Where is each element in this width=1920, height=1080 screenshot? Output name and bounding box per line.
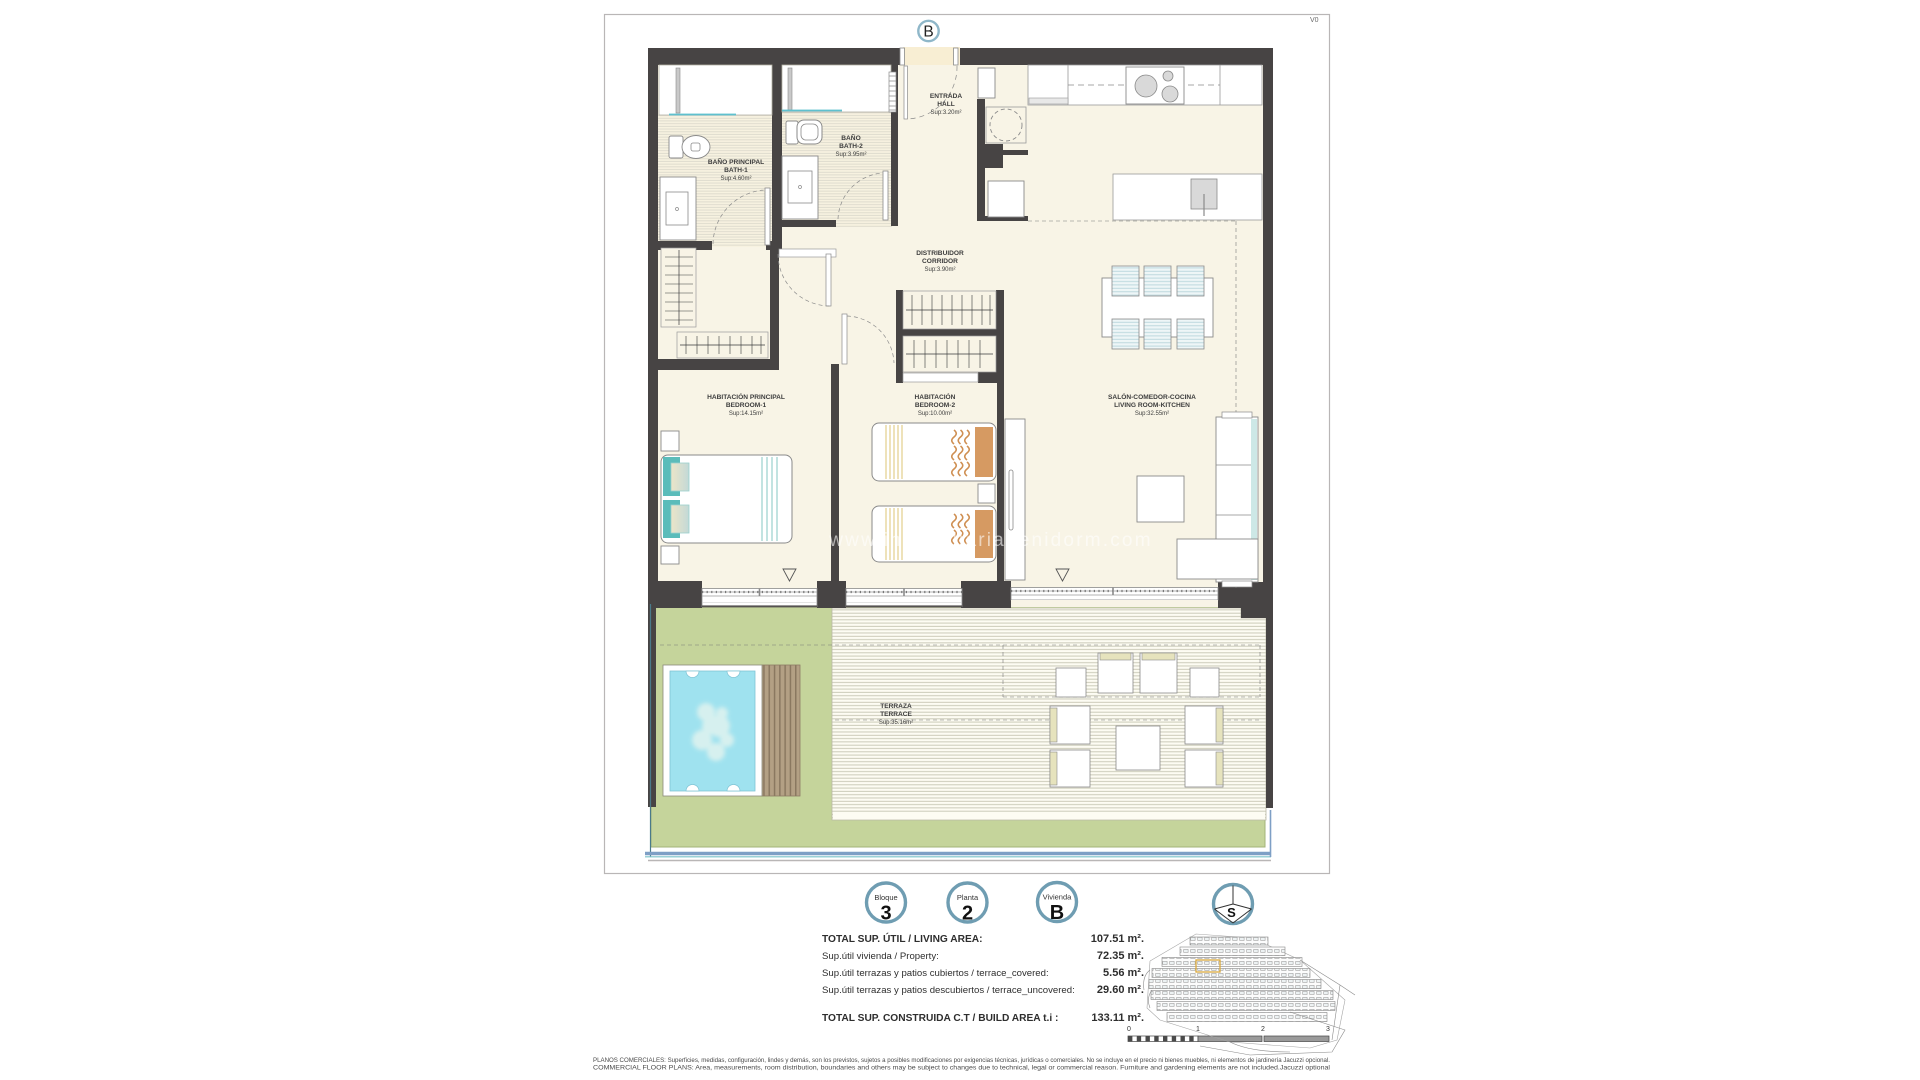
- svg-text:2: 2: [1261, 1026, 1265, 1033]
- svg-text:B: B: [923, 24, 933, 41]
- svg-text:Bloque: Bloque: [874, 893, 897, 902]
- svg-text:Sup:35.16m²: Sup:35.16m²: [879, 720, 913, 726]
- svg-text:SALÓN-COMEDOR-COCINA: SALÓN-COMEDOR-COCINA: [1108, 392, 1196, 401]
- svg-text:BAÑO PRINCIPAL: BAÑO PRINCIPAL: [708, 157, 764, 166]
- svg-text:BEDROOM-2: BEDROOM-2: [915, 402, 956, 409]
- svg-text:3: 3: [1326, 1026, 1330, 1033]
- svg-text:29.60 m².: 29.60 m².: [1097, 984, 1144, 996]
- svg-text:3: 3: [880, 903, 891, 925]
- svg-text:Planta: Planta: [957, 893, 979, 902]
- svg-text:BATH-1: BATH-1: [724, 167, 748, 174]
- svg-text:133.11 m².: 133.11 m².: [1091, 1012, 1144, 1024]
- svg-text:COMMERCIAL FLOOR PLANS: Area,: COMMERCIAL FLOOR PLANS: Area, measuremen…: [593, 1065, 1330, 1072]
- svg-text:Sup:14.15m²: Sup:14.15m²: [729, 411, 763, 417]
- svg-text:HALL: HALL: [937, 101, 955, 108]
- svg-text:Sup:3.90m²: Sup:3.90m²: [924, 267, 955, 273]
- svg-text:0: 0: [1127, 1026, 1131, 1033]
- svg-text:BAÑO: BAÑO: [841, 133, 860, 142]
- svg-text:TERRACE: TERRACE: [880, 711, 912, 718]
- svg-text:BATH-2: BATH-2: [839, 143, 863, 150]
- svg-text:Sup:3.95m²: Sup:3.95m²: [835, 152, 866, 158]
- svg-text:72.35 m².: 72.35 m².: [1097, 950, 1144, 962]
- svg-text:Sup.útil vivienda / Property:: Sup.útil vivienda / Property:: [822, 951, 939, 962]
- svg-text:BEDROOM-1: BEDROOM-1: [726, 402, 767, 409]
- svg-text:Vivienda: Vivienda: [1043, 893, 1072, 902]
- svg-text:CORRIDOR: CORRIDOR: [922, 258, 958, 265]
- svg-text:TERRAZA: TERRAZA: [880, 703, 912, 710]
- svg-text:2: 2: [962, 903, 973, 925]
- svg-text:Sup:32.55m²: Sup:32.55m²: [1135, 411, 1169, 417]
- svg-text:LIVING ROOM-KITCHEN: LIVING ROOM-KITCHEN: [1114, 402, 1190, 409]
- svg-text:Sup.útil terrazas y patios des: Sup.útil terrazas y patios descubiertos …: [822, 985, 1075, 996]
- svg-text:S: S: [1227, 905, 1236, 920]
- svg-text:HABITACIÓN PRINCIPAL: HABITACIÓN PRINCIPAL: [707, 392, 785, 401]
- svg-text:TOTAL SUP. ÚTIL / LIVING AREA:: TOTAL SUP. ÚTIL / LIVING AREA:: [822, 932, 983, 945]
- svg-text:V0: V0: [1310, 17, 1319, 24]
- svg-text:PLANOS COMERCIALES: Superficie: PLANOS COMERCIALES: Superficies, medidas…: [593, 1057, 1330, 1064]
- svg-text:TOTAL SUP. CONSTRUIDA C.T / BU: TOTAL SUP. CONSTRUIDA C.T / BUILD AREA t…: [822, 1013, 1058, 1024]
- svg-text:ENTRADA: ENTRADA: [930, 93, 962, 100]
- svg-text:Sup:10.00m²: Sup:10.00m²: [918, 411, 952, 417]
- svg-text:5.56 m².: 5.56 m².: [1103, 967, 1144, 979]
- svg-text:Sup.útil terrazas y patios cub: Sup.útil terrazas y patios cubiertos / t…: [822, 968, 1049, 979]
- svg-text:HABITACIÓN: HABITACIÓN: [915, 392, 956, 401]
- svg-text:B: B: [1050, 902, 1064, 924]
- svg-text:Sup:4.60m²: Sup:4.60m²: [720, 176, 751, 182]
- svg-text:Sup:3.20m²: Sup:3.20m²: [930, 110, 961, 116]
- svg-text:DISTRIBUIDOR: DISTRIBUIDOR: [916, 250, 964, 257]
- svg-text:www.inmobiliariabenidorm.com: www.inmobiliariabenidorm.com: [828, 530, 1152, 551]
- svg-text:107.51 m².: 107.51 m².: [1091, 933, 1144, 945]
